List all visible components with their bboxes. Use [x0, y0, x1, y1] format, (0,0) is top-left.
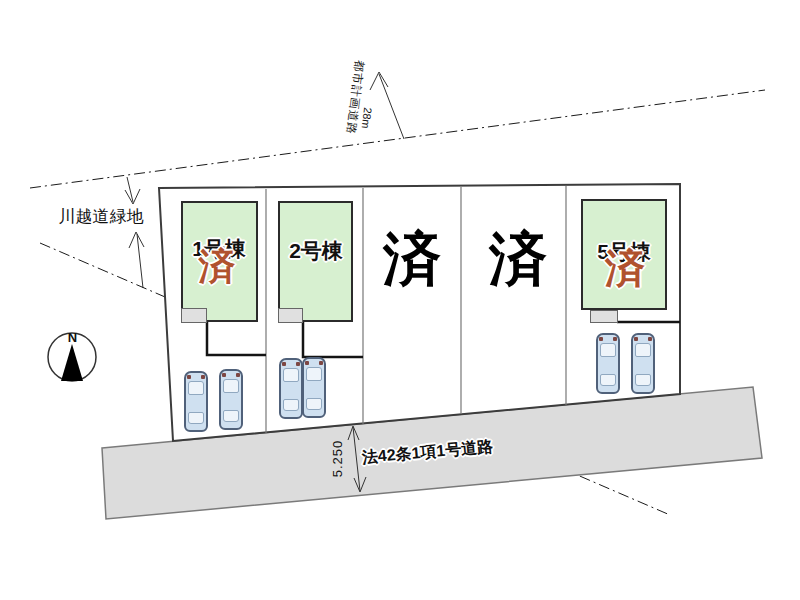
car-icon	[302, 357, 326, 418]
green-space-label: 川越道緑地	[51, 205, 151, 228]
road-width-dimension: 5.250	[330, 429, 345, 489]
car-icon	[279, 358, 303, 419]
lot1-sold-badge: 済	[177, 247, 257, 287]
green-space-arrow-up-head	[129, 232, 144, 248]
lot4-sold-badge: 済	[468, 229, 568, 289]
lot1-porch	[181, 308, 207, 323]
plan-drawing	[0, 0, 800, 600]
car-icon	[184, 371, 208, 432]
lot5-porch	[590, 310, 618, 323]
compass-north-label: N	[60, 330, 85, 345]
car-icon	[219, 369, 243, 430]
planning-road-arrow-shaft	[379, 74, 404, 139]
lot2-name-label: 2号棟	[276, 239, 356, 263]
lot3-sold-badge: 済	[362, 229, 462, 289]
planning-road-boundary-line	[30, 90, 765, 188]
lot5-sold-badge: 済	[585, 247, 665, 289]
car-icon	[596, 333, 620, 394]
car-icon	[631, 333, 655, 394]
lot2-porch	[278, 308, 303, 323]
green-space-arrow-up-shaft	[137, 234, 143, 288]
site-plan: 川越道緑地 都市計画道路 28m 法42条1項1号道路 5.250 1号棟 済 …	[0, 0, 800, 600]
